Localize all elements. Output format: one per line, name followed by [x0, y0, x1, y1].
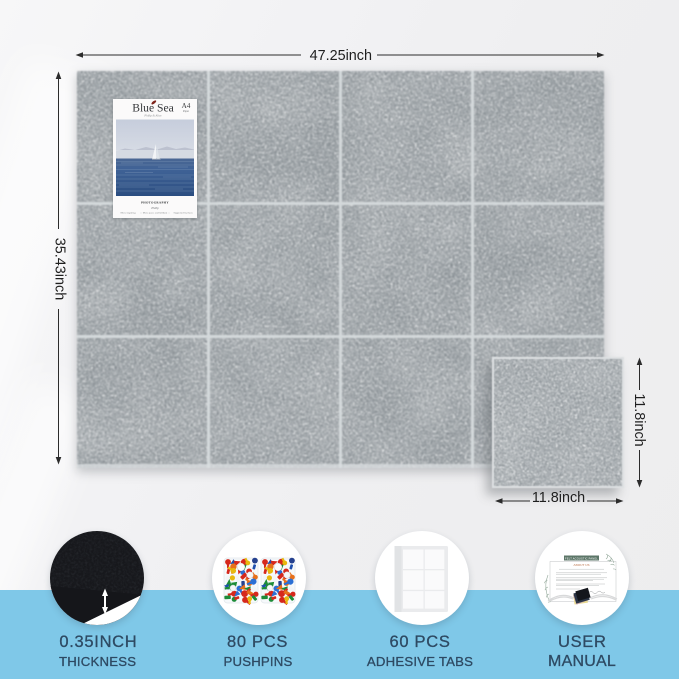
- svg-text:FELT ACOUSTIC PANEL: FELT ACOUSTIC PANEL: [565, 556, 598, 560]
- svg-text:11.8inch: 11.8inch: [532, 490, 585, 506]
- svg-text:35.43inch: 35.43inch: [51, 238, 67, 300]
- svg-text:ABOUT US: ABOUT US: [573, 563, 589, 567]
- svg-text:47.25inch: 47.25inch: [310, 48, 372, 64]
- svg-text:11.8inch: 11.8inch: [631, 393, 647, 446]
